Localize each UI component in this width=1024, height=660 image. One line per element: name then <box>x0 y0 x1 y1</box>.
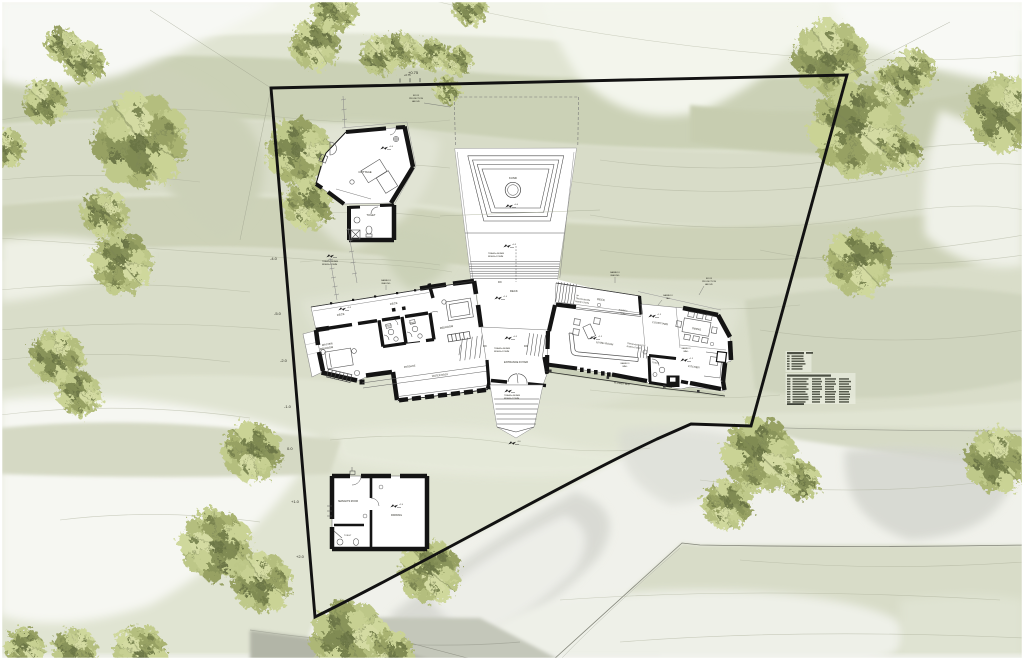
svg-text:+2.0: +2.0 <box>296 554 305 559</box>
svg-text:ROOF: ROOF <box>706 278 713 280</box>
svg-text:TREAD=300MM: TREAD=300MM <box>504 394 520 397</box>
svg-text:BAMBOO: BAMBOO <box>682 347 691 350</box>
svg-text:BAMBOO: BAMBOO <box>610 271 620 274</box>
svg-text:PROJECTION: PROJECTION <box>409 98 424 100</box>
svg-text:RAILING: RAILING <box>382 282 391 285</box>
svg-text:TOILET: TOILET <box>344 535 352 537</box>
svg-text:TREAD=300MM: TREAD=300MM <box>488 252 504 255</box>
svg-text:ABOVE: ABOVE <box>705 283 713 286</box>
svg-text:RAILING: RAILING <box>611 274 620 277</box>
svg-text:BAMBOO: BAMBOO <box>621 362 630 365</box>
svg-text:DN: DN <box>483 345 487 348</box>
svg-text:TREAD=300MM: TREAD=300MM <box>494 347 510 350</box>
svg-text:SERVANTS ROOM: SERVANTS ROOM <box>338 500 358 503</box>
svg-text:TREAD=300MM: TREAD=300MM <box>322 260 338 263</box>
svg-text:DECK: DECK <box>510 289 518 293</box>
svg-text:0.0: 0.0 <box>287 446 293 451</box>
svg-text:RISER=170MM: RISER=170MM <box>322 264 337 266</box>
svg-text:-1.0: -1.0 <box>284 404 292 409</box>
svg-text:ROOF: ROOF <box>413 95 420 97</box>
svg-text:-4.0: -4.0 <box>270 256 278 261</box>
svg-text:PROJECTION: PROJECTION <box>702 281 717 283</box>
svg-text:-2.0: -2.0 <box>280 358 288 363</box>
svg-text:BAMBOO: BAMBOO <box>663 294 673 297</box>
svg-text:DN: DN <box>498 281 502 284</box>
svg-text:ABOVE: ABOVE <box>412 100 420 103</box>
svg-text:-5.0: -5.0 <box>274 311 282 316</box>
svg-text:ENTRANCE FOYER: ENTRANCE FOYER <box>504 360 528 364</box>
svg-text:DN: DN <box>524 345 528 348</box>
svg-text:PARKING: PARKING <box>391 514 402 517</box>
svg-text:RISER=170MM: RISER=170MM <box>504 398 519 400</box>
svg-text:RISER=170MM: RISER=170MM <box>488 256 503 258</box>
svg-text:WALL: WALL <box>622 365 628 368</box>
svg-text:BAMBOO: BAMBOO <box>381 279 391 282</box>
svg-text:COTTAGE: COTTAGE <box>358 170 371 174</box>
svg-text:+1.0: +1.0 <box>291 499 300 504</box>
svg-text:JALI: JALI <box>666 297 671 300</box>
svg-text:+0.75: +0.75 <box>404 73 411 77</box>
svg-text:RISER=170MM: RISER=170MM <box>494 351 509 353</box>
svg-text:KUND: KUND <box>509 176 517 180</box>
svg-text:WALL: WALL <box>683 350 689 353</box>
